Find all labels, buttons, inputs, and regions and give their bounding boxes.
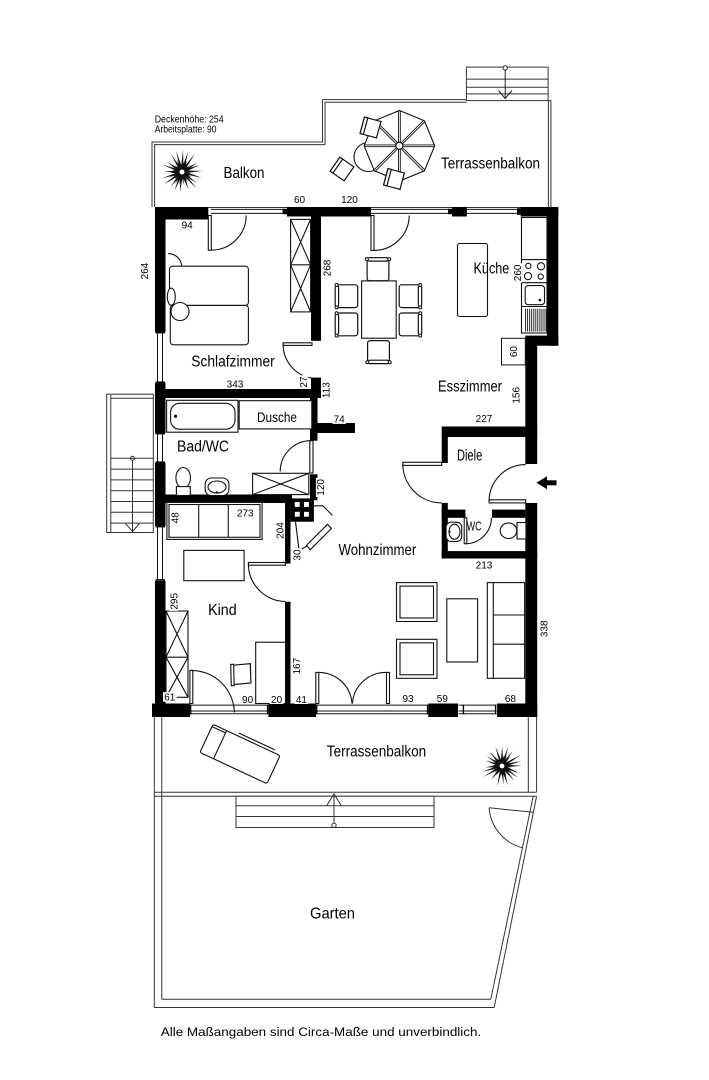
- svg-text:Garten: Garten: [310, 906, 355, 923]
- svg-text:90: 90: [242, 695, 254, 706]
- svg-text:60: 60: [509, 346, 520, 358]
- svg-text:338: 338: [540, 620, 551, 637]
- svg-text:48: 48: [170, 512, 181, 524]
- svg-text:59: 59: [437, 694, 449, 705]
- svg-text:94: 94: [182, 221, 194, 232]
- svg-text:Wohnzimmer: Wohnzimmer: [339, 542, 417, 559]
- svg-text:167: 167: [292, 657, 303, 674]
- svg-text:156: 156: [512, 387, 523, 404]
- svg-text:60: 60: [294, 195, 306, 206]
- svg-text:204: 204: [276, 522, 287, 539]
- svg-text:260: 260: [513, 264, 524, 281]
- svg-text:93: 93: [402, 694, 414, 705]
- svg-text:68: 68: [505, 694, 517, 705]
- svg-text:120: 120: [316, 479, 327, 496]
- svg-text:113: 113: [322, 382, 333, 398]
- svg-text:343: 343: [227, 380, 244, 391]
- svg-text:227: 227: [476, 414, 493, 425]
- svg-text:41: 41: [296, 695, 308, 706]
- svg-text:Esszimmer: Esszimmer: [438, 379, 502, 396]
- svg-text:268: 268: [323, 259, 334, 276]
- svg-text:264: 264: [140, 262, 151, 279]
- svg-text:Terrassenbalkon: Terrassenbalkon: [327, 744, 426, 761]
- svg-text:273: 273: [237, 509, 254, 520]
- svg-text:Balkon: Balkon: [224, 165, 265, 182]
- svg-text:27: 27: [299, 376, 310, 388]
- svg-text:Alle Maßangaben sind Circa-Maß: Alle Maßangaben sind Circa-Maße und unve…: [161, 1025, 481, 1039]
- svg-text:Terrassenbalkon: Terrassenbalkon: [441, 156, 540, 173]
- svg-text:295: 295: [169, 593, 180, 610]
- svg-text:Küche: Küche: [474, 260, 510, 277]
- svg-text:20: 20: [271, 695, 283, 706]
- svg-text:Schlafzimmer: Schlafzimmer: [191, 353, 275, 370]
- svg-text:Dusche: Dusche: [257, 410, 297, 425]
- svg-text:Bad/WC: Bad/WC: [177, 439, 229, 456]
- svg-text:61: 61: [164, 693, 176, 704]
- svg-text:Kind: Kind: [208, 602, 237, 619]
- svg-text:213: 213: [476, 560, 493, 571]
- svg-text:30: 30: [293, 549, 304, 561]
- svg-text:WC: WC: [467, 519, 482, 534]
- svg-text:Arbeitsplatte: 90: Arbeitsplatte: 90: [155, 123, 217, 135]
- svg-text:74: 74: [334, 415, 346, 426]
- svg-text:Diele: Diele: [457, 447, 482, 464]
- svg-text:120: 120: [341, 195, 358, 206]
